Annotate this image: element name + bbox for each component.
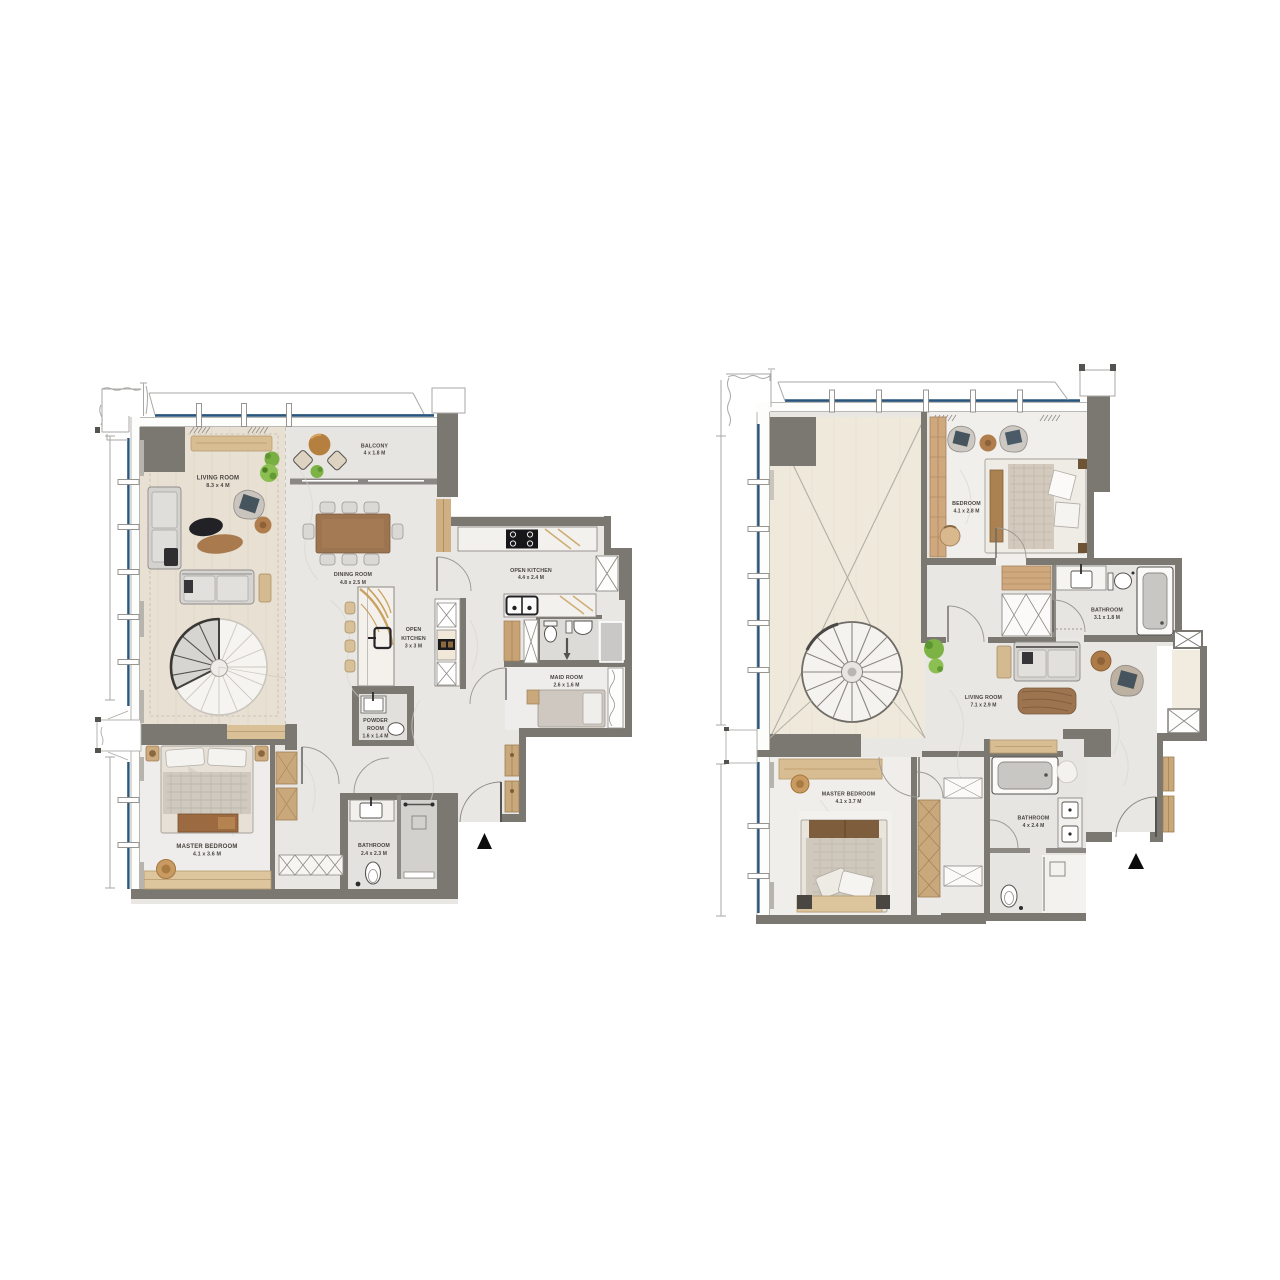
svg-text:4 x 1.8 M: 4 x 1.8 M [364,451,386,457]
svg-text:4.1 x 3.7 M: 4.1 x 3.7 M [835,799,861,805]
svg-text:2.4 x 2.3 M: 2.4 x 2.3 M [361,851,387,857]
svg-text:2.6 x 1.6 M: 2.6 x 1.6 M [553,683,579,689]
svg-text:ROOM: ROOM [367,726,385,732]
svg-text:MASTER BEDROOM: MASTER BEDROOM [176,844,237,850]
svg-text:3.1 x 1.8 M: 3.1 x 1.8 M [1094,615,1120,621]
svg-text:LIVING ROOM: LIVING ROOM [965,695,1003,701]
svg-text:MASTER BEDROOM: MASTER BEDROOM [822,792,876,798]
svg-text:4 x 2.4 M: 4 x 2.4 M [1023,823,1045,829]
svg-text:OPEN: OPEN [406,627,422,633]
svg-text:8.3 x 4 M: 8.3 x 4 M [206,483,230,489]
svg-text:4.8 x 2.5 M: 4.8 x 2.5 M [340,580,366,586]
svg-text:3 x 3 M: 3 x 3 M [405,644,422,650]
svg-text:7.1 x 2.9 M: 7.1 x 2.9 M [970,703,996,709]
svg-text:POWDER: POWDER [363,718,388,724]
svg-text:BEDROOM: BEDROOM [952,501,981,507]
svg-text:BATHROOM: BATHROOM [1018,816,1050,822]
svg-text:4.1 x 3.6 M: 4.1 x 3.6 M [193,852,222,858]
svg-text:DINING ROOM: DINING ROOM [334,572,373,578]
svg-text:4.4 x 2.4 M: 4.4 x 2.4 M [518,575,544,581]
svg-text:BATHROOM: BATHROOM [358,843,390,849]
svg-text:OPEN KITCHEN: OPEN KITCHEN [510,568,552,574]
svg-text:BALCONY: BALCONY [361,444,389,450]
svg-text:KITCHEN: KITCHEN [401,636,426,642]
svg-text:1.6 x 1.4 M: 1.6 x 1.4 M [362,734,388,740]
svg-text:4.1 x 2.8 M: 4.1 x 2.8 M [953,509,979,515]
svg-text:LIVING ROOM: LIVING ROOM [197,476,240,482]
svg-text:MAID ROOM: MAID ROOM [550,675,583,681]
svg-text:BATHROOM: BATHROOM [1091,608,1123,614]
